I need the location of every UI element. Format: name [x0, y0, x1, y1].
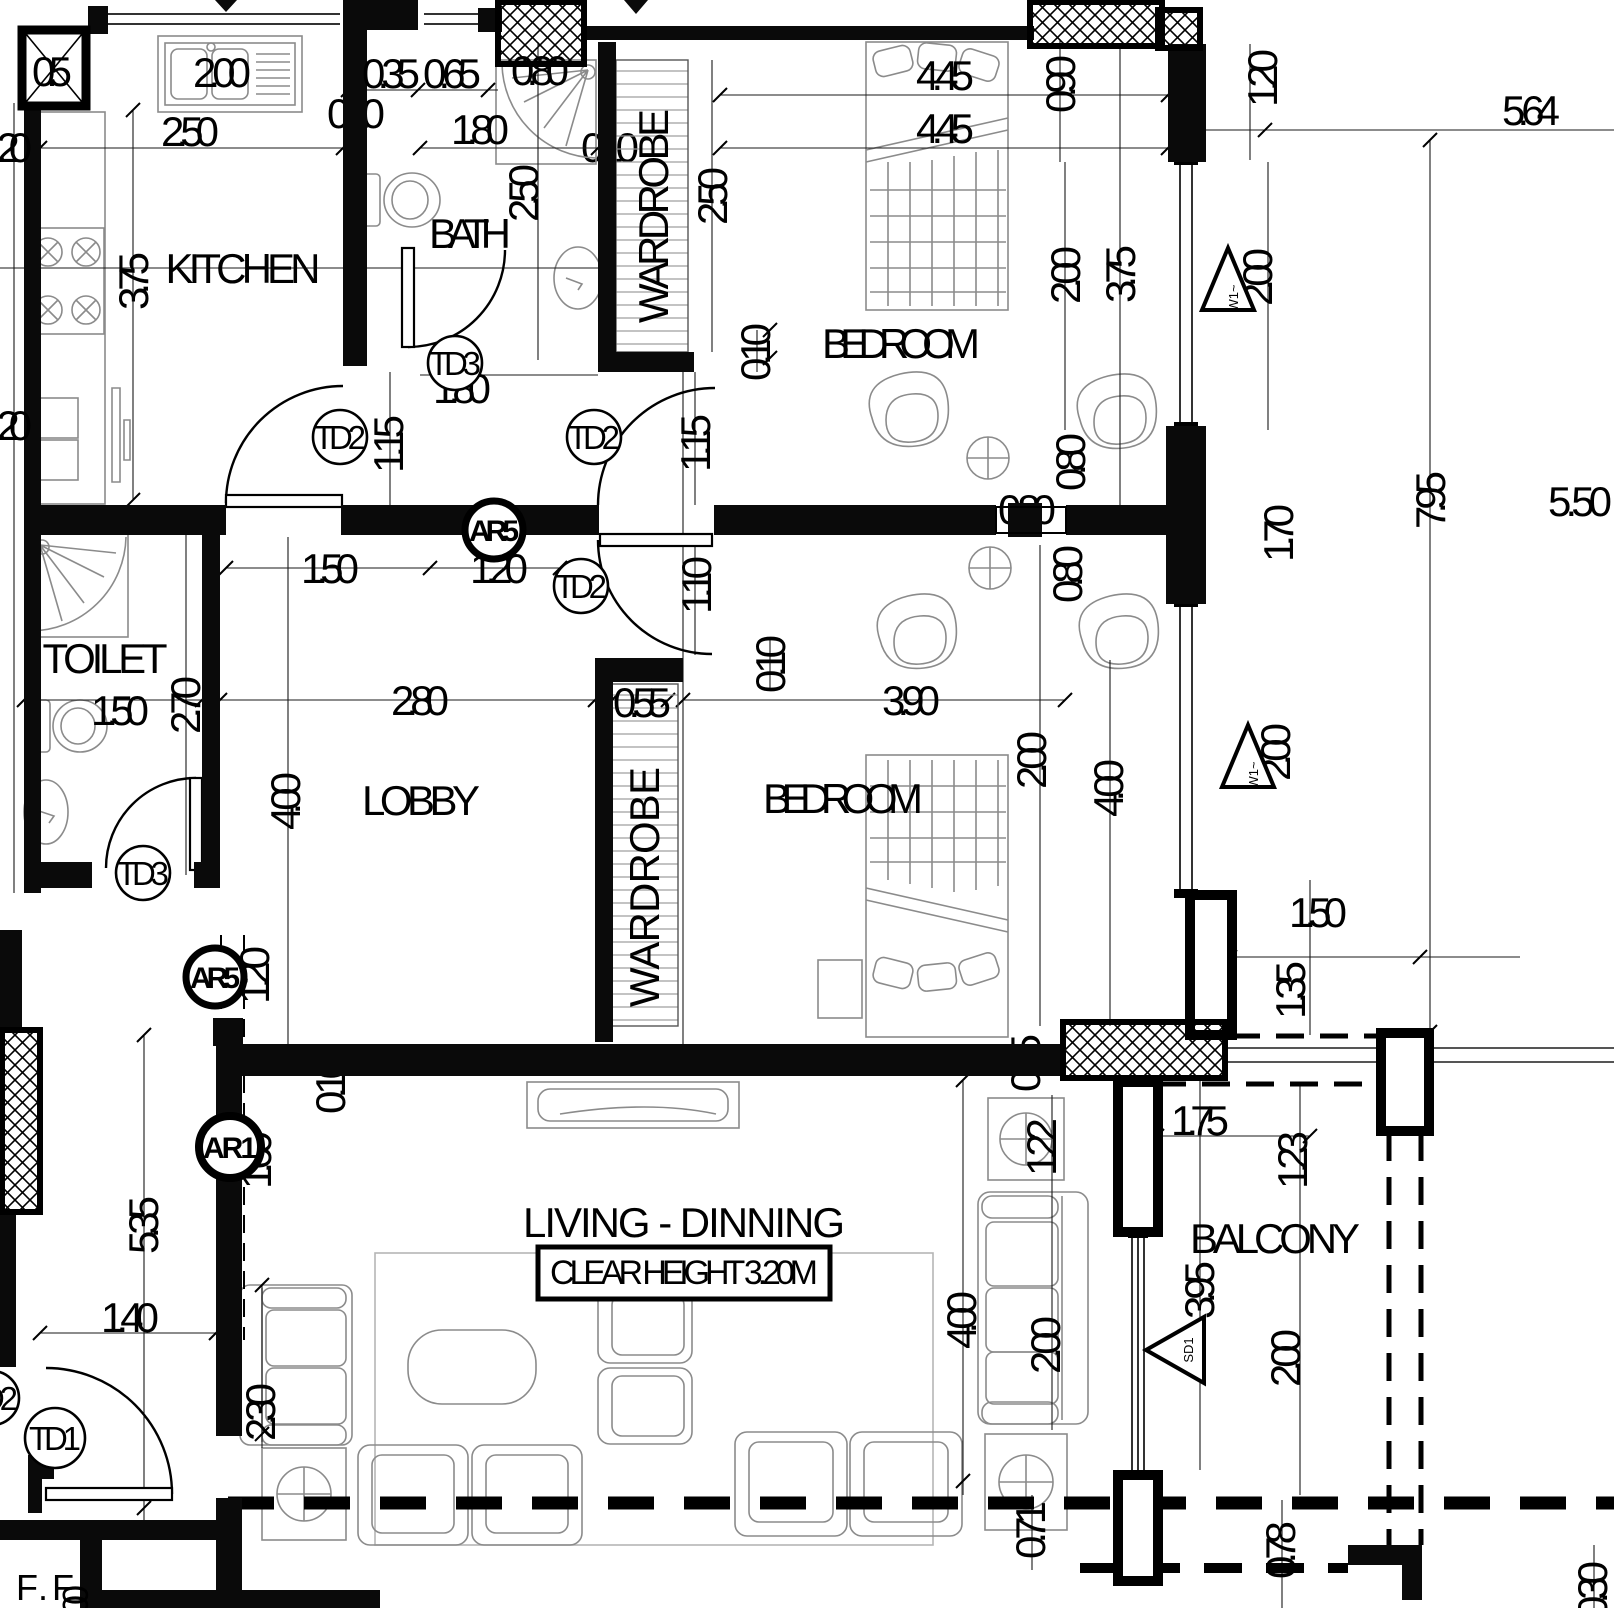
svg-text:W1~: W1~: [1246, 761, 1261, 789]
label-bedroom-top: BEDROOM: [822, 320, 980, 367]
toilet-shower: [28, 533, 128, 637]
dim-left-20a: .20: [0, 124, 32, 171]
door-leaf-bedroom-mid: [600, 534, 712, 546]
svg-text:TD3: TD3: [429, 345, 481, 382]
tag-td2-bedroom-top: TD2: [567, 410, 621, 464]
dim-bed2-400: 4.00: [1085, 759, 1132, 817]
dim-liv-200: 2.00: [1022, 1316, 1069, 1374]
label-wardrobe-top: WARDROBE: [630, 109, 677, 323]
door-leaf-kitchen: [226, 495, 342, 507]
door-leaf-bath: [402, 248, 414, 347]
tag-sd1-sliding-door: SD1: [1146, 1317, 1204, 1383]
walls: [0, 0, 1422, 1608]
dim-right-564: 5.64: [1502, 87, 1560, 134]
dim-115a: 1.15: [365, 415, 412, 473]
label-bedroom-mid: BEDROOM: [763, 775, 923, 822]
dim-lobby-150: 1.50: [301, 545, 359, 592]
dim-right-170: 1.70: [1255, 504, 1302, 562]
dim-bath-250: 2.50: [500, 164, 547, 222]
bedroom-top-armchairs: [869, 372, 1156, 479]
dim-right-120: 1.20: [1239, 49, 1286, 107]
dim-bed2-390: 3.90: [882, 677, 940, 724]
dim-bath-035: 0.35: [362, 50, 420, 97]
tag-td1-entry: TD1: [25, 1408, 85, 1468]
label-bath: BATH: [429, 210, 511, 257]
dim-115b: 1.15: [672, 414, 719, 472]
door-leaf-toilet: [190, 778, 202, 870]
window-bedroom-mid: [1180, 604, 1192, 893]
svg-text:AR1: AR1: [203, 1132, 257, 1165]
dim-liv-230: 2.30: [237, 1383, 284, 1441]
dim-bed2-200: 2.00: [1008, 731, 1055, 789]
dim-bal-135: 1.35: [1267, 961, 1314, 1019]
dim-bath-door: 1.80: [451, 106, 509, 153]
dim-right-550: 5.50: [1548, 478, 1612, 525]
door-arc-bath: [408, 250, 505, 347]
bath-wc: [356, 173, 440, 227]
dim-kitchen-width: 2.50: [161, 108, 219, 155]
label-living-dinning: LIVING - DINNING: [523, 1199, 845, 1246]
tv-console: [527, 1082, 739, 1128]
dim-right-795: 7.95: [1407, 471, 1454, 529]
dim-bath-065: 0.65: [423, 50, 481, 97]
svg-text:AR5: AR5: [469, 515, 519, 548]
dim-liv-400: 4.00: [938, 1291, 985, 1349]
armchairs-right-of-table: [598, 1287, 692, 1444]
dim-bed2-010: 0.10: [747, 635, 794, 693]
armchairs-bottom: [358, 1432, 962, 1545]
svg-text:TD2: TD2: [0, 1380, 18, 1417]
dim-bed1-200: 2.00: [1042, 246, 1089, 304]
bedroom-mid-armchairs: [877, 547, 1158, 668]
tag-ar5-top: AR5: [465, 501, 523, 559]
label-clear-height: CLEAR HEIGHT 3.20M: [550, 1254, 818, 1292]
dim-chair-080b: 0.80: [1044, 545, 1091, 603]
tag-ar5-corridor: AR5: [186, 948, 244, 1006]
bath-basin-tap: [566, 278, 582, 290]
floor-plan-sheet: 0.10 0.10 0.80 0.15 0.10: [0, 0, 1614, 1608]
dim-shaft-05: 0.5: [32, 48, 72, 95]
dim-bal-150: 1.50: [1289, 889, 1347, 936]
sofa-dining-side: [978, 1192, 1088, 1424]
dim-corr-535: 5.35: [120, 1196, 167, 1254]
dim-liv-122: 1.22: [1018, 1118, 1065, 1176]
svg-text:TD2: TD2: [314, 419, 366, 456]
svg-text:SD1: SD1: [1181, 1337, 1196, 1362]
label-kitchen: KITCHEN: [166, 245, 321, 292]
dim-bal-123: 1.23: [1269, 1131, 1316, 1189]
dim-bed1-090: 0.90: [1037, 55, 1084, 113]
svg-text:W1~: W1~: [1226, 284, 1241, 312]
label-wardrobe-mid: WARDROBE: [621, 767, 668, 1007]
dim-lobby-280: 2.80: [391, 677, 449, 724]
dim-kitchen-sink: 2.00: [193, 49, 251, 96]
clear-height-note: CLEAR HEIGHT 3.20M: [538, 1247, 830, 1299]
dim-bath-080: 0.80: [511, 47, 569, 94]
dim-bed1-445b: 4.45: [916, 105, 974, 152]
svg-text:AR5: AR5: [190, 962, 240, 995]
dim-bot-078: 0.78: [1257, 1521, 1304, 1579]
dim-bed1-375: 3.75: [1097, 245, 1144, 303]
dim-left-20b: .20: [0, 402, 32, 449]
dim-bot-030: 0.30: [1569, 1561, 1614, 1608]
window-bath: [424, 14, 478, 24]
label-balcony: BALCONY: [1190, 1215, 1360, 1262]
coffee-table: [408, 1330, 536, 1404]
dim-chair-080a: 0.80: [1047, 433, 1094, 491]
dim-toilet-150: 1.50: [91, 687, 149, 734]
dim-lobby-400: 4.00: [262, 772, 309, 830]
dim-corr-140: 1.40: [101, 1294, 159, 1341]
dim-bot-071: 0.71: [1007, 1501, 1054, 1559]
dim-kitchen-375: 3.75: [110, 252, 157, 310]
svg-text:TD3: TD3: [117, 855, 169, 892]
tag-td3-bath: TD3: [428, 336, 482, 390]
tag-td2-bedroom-mid: TD2: [554, 559, 608, 613]
tag-td2-kitchen: TD2: [313, 410, 367, 464]
label-toilet: TOILET: [43, 635, 168, 682]
svg-text:TD2: TD2: [555, 568, 607, 605]
label-lobby: LOBBY: [362, 777, 480, 824]
dim-wardrobe-055: 0.55: [613, 679, 671, 726]
dim-toilet-270: 2.70: [162, 676, 209, 734]
sliding-door-glazing: [1132, 1235, 1144, 1473]
dim-bal-200: 2.00: [1262, 1329, 1309, 1387]
windows: [100, 14, 1614, 1480]
dim-110: 1.10: [673, 556, 720, 614]
tag-ar1-corridor: AR1: [199, 1116, 261, 1178]
svg-text:TD2: TD2: [568, 419, 620, 456]
floor-plan-canvas: 0.10 0.10 0.80 0.15 0.10: [0, 0, 1614, 1608]
window-kitchen: [100, 14, 340, 24]
bath-basin: [554, 247, 602, 309]
dim-wardrobe-010: 0.10: [732, 323, 779, 381]
tag-td2-partial-left-edge: TD2: [0, 1371, 19, 1425]
tag-td3-toilet: TD3: [116, 846, 170, 900]
label-floor-level-frag: 00: [55, 1585, 96, 1608]
dim-bed1-445a: 4.45: [916, 52, 974, 99]
dim-wardrobe1-250: 2.50: [689, 167, 736, 225]
door-leaf-entry: [46, 1488, 172, 1500]
svg-text:TD1: TD1: [29, 1420, 81, 1457]
dim-bal-175: 1.75: [1171, 1097, 1229, 1144]
dim-sd-395: 3.95: [1176, 1261, 1223, 1319]
window-bedroom-top: [1180, 162, 1192, 426]
